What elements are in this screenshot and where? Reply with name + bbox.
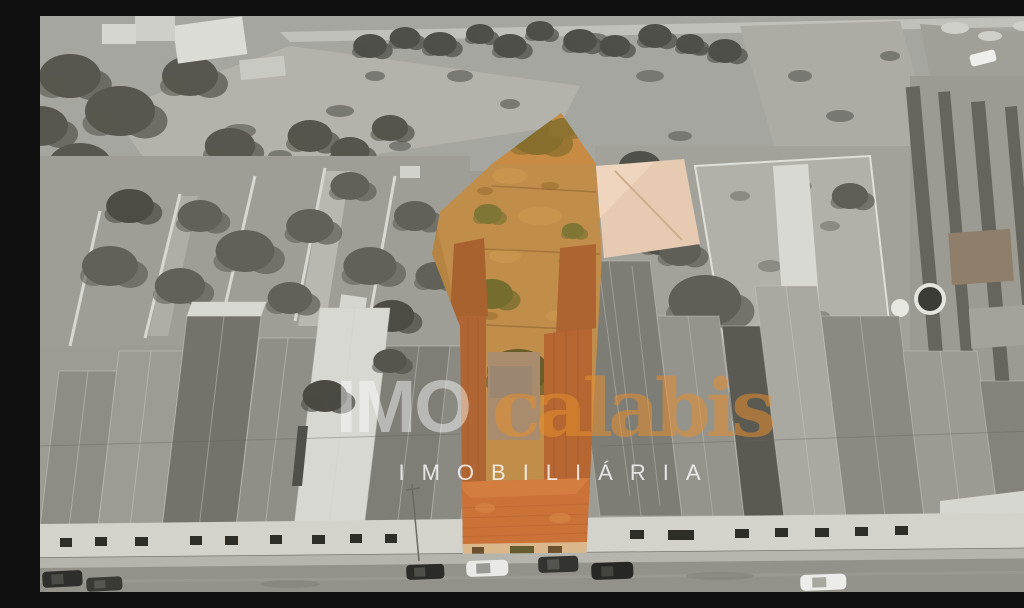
annex-white-building — [596, 159, 700, 258]
parked-car-dark — [591, 562, 634, 580]
parked-car-white — [800, 573, 847, 591]
parked-car-dark — [538, 556, 579, 573]
watermark-brand-second: calabis — [492, 361, 773, 455]
aerial-listing-photo: IMO calabis IMOBILIÁRIA — [40, 16, 1024, 592]
watermark: IMO calabis IMOBILIÁRIA — [336, 361, 773, 485]
rusty-shed — [948, 229, 1013, 285]
watermark-brand-first: IMO — [336, 365, 470, 448]
parked-car-dark — [406, 564, 445, 580]
parked-car-dark — [86, 576, 123, 592]
watermark-tagline: IMOBILIÁRIA — [398, 460, 717, 485]
round-hut — [891, 299, 909, 317]
parked-car-white — [466, 560, 509, 577]
metal-shed — [969, 303, 1024, 348]
parked-car-dark — [42, 570, 83, 588]
